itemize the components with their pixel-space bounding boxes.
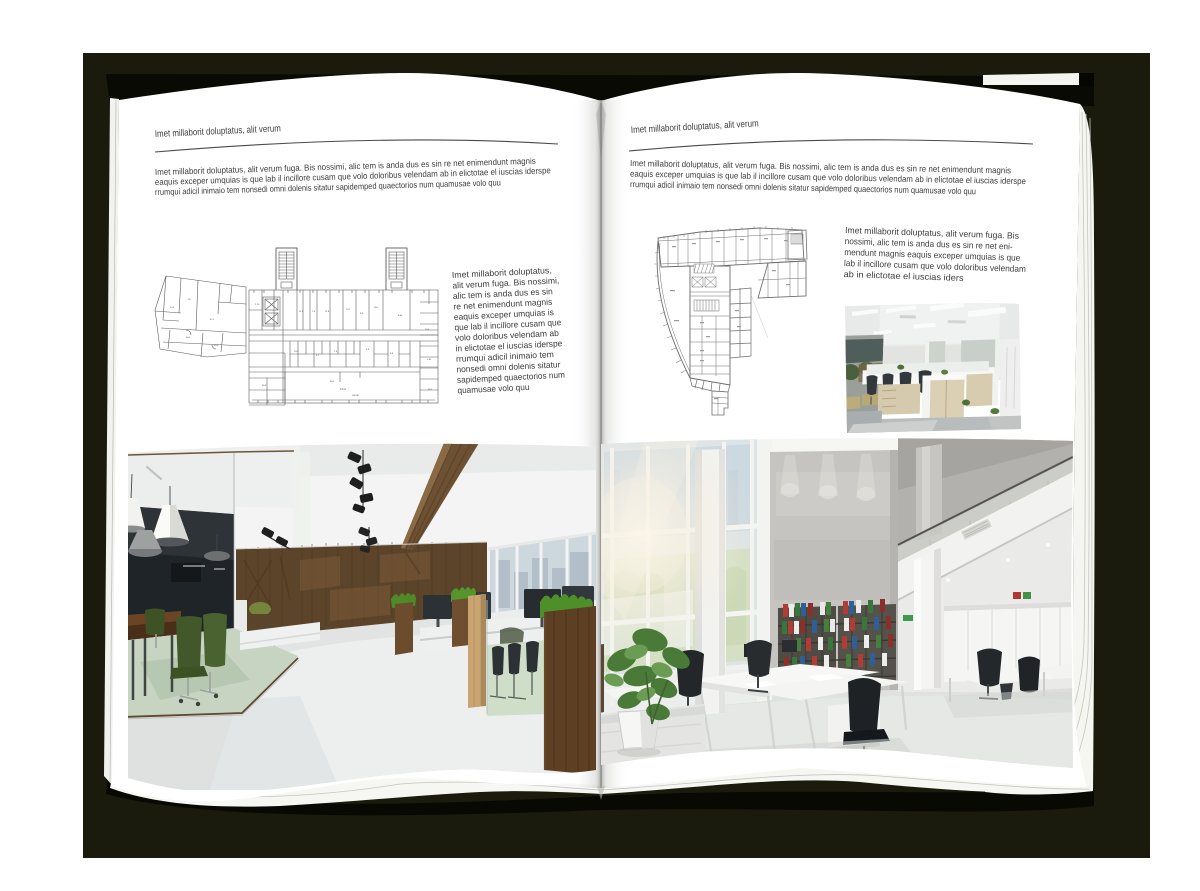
svg-text:2-й эт: 2-й эт	[340, 388, 347, 391]
svg-text:142.88: 142.88	[352, 395, 359, 397]
